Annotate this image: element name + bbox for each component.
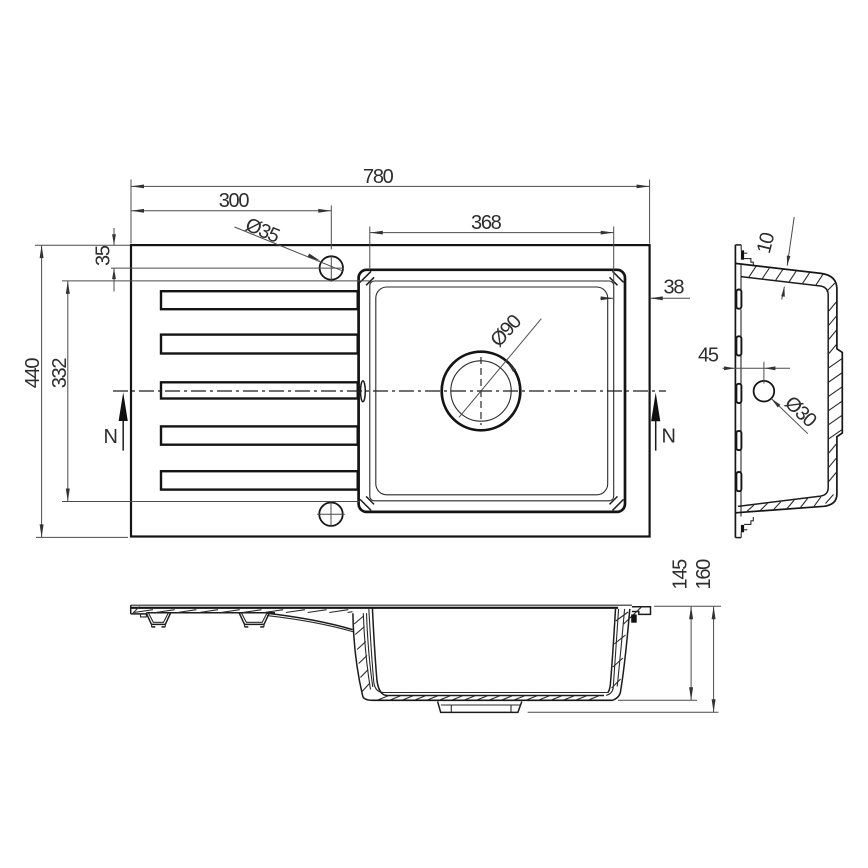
svg-text:45: 45 bbox=[698, 345, 719, 367]
svg-text:N: N bbox=[662, 426, 675, 448]
svg-text:N: N bbox=[104, 426, 117, 448]
svg-text:38: 38 bbox=[664, 276, 685, 298]
svg-text:368: 368 bbox=[471, 212, 502, 234]
svg-text:35: 35 bbox=[92, 245, 114, 266]
svg-text:440: 440 bbox=[22, 358, 44, 389]
svg-text:780: 780 bbox=[363, 166, 394, 188]
svg-text:145: 145 bbox=[669, 559, 691, 590]
svg-text:300: 300 bbox=[219, 190, 250, 212]
svg-text:160: 160 bbox=[693, 559, 715, 590]
svg-text:332: 332 bbox=[49, 358, 71, 389]
